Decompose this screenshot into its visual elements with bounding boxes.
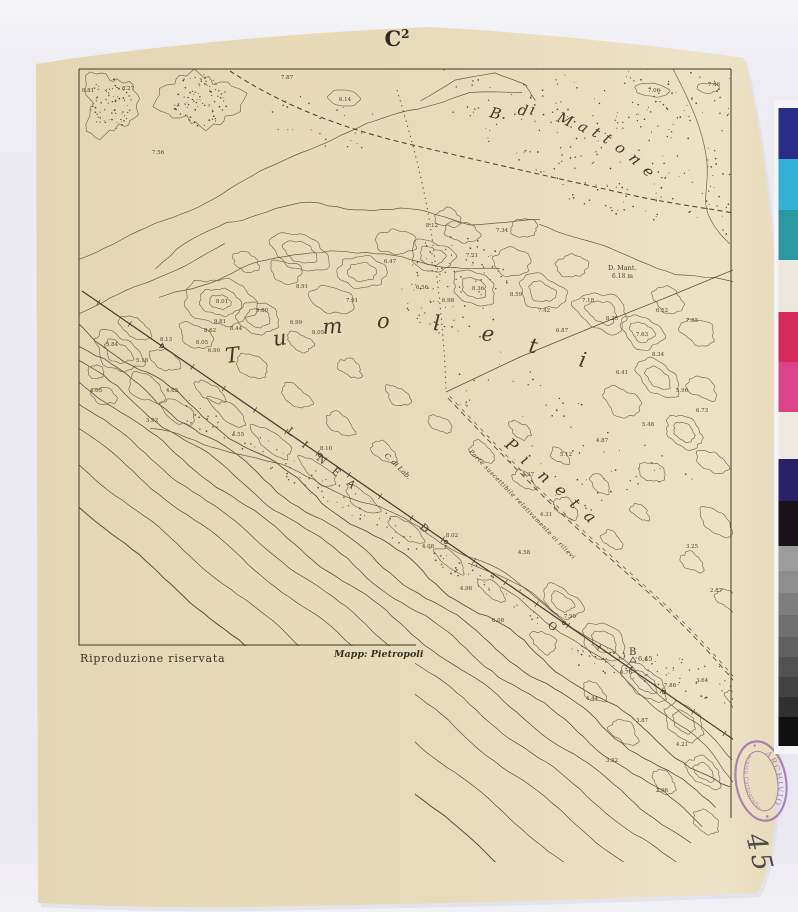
spot-height: 3.92 (146, 418, 158, 424)
spot-height: 6.56 (416, 285, 429, 291)
color-patch (779, 459, 798, 501)
spot-height: 6.41 (616, 370, 628, 376)
spot-height: 7.63 (636, 332, 649, 338)
spot-height: 3.25 (686, 544, 699, 550)
spot-height: 7.87 (281, 75, 294, 81)
color-patch (779, 260, 798, 312)
color-patch (779, 615, 798, 637)
label-b: B (629, 647, 636, 658)
spot-height: 4.87 (596, 438, 609, 444)
spot-height: 8.81 (82, 88, 94, 94)
spot-height: 8.36 (472, 286, 485, 292)
spot-height: 7.21 (466, 253, 478, 259)
map-letter: o (377, 309, 390, 333)
spot-height: 6.87 (556, 328, 569, 334)
color-patch (779, 501, 798, 546)
spot-height: 6.52 (656, 308, 668, 314)
spot-height: 6.47 (384, 259, 397, 265)
credit-left: Riproduzione riservata (80, 652, 225, 665)
color-patch (779, 362, 798, 412)
spot-height: 6.08 (492, 618, 505, 624)
spot-height: 5.12 (560, 452, 572, 458)
spot-height: 7.88 (664, 683, 677, 689)
spot-height: 7.56 (152, 150, 165, 156)
spot-height: 4.55 (232, 432, 245, 438)
spot-height: 9.80 (256, 308, 269, 314)
label-d-mant: D. Mant. (608, 264, 637, 272)
spot-height: 4.98 (460, 586, 473, 592)
color-patch (779, 593, 798, 615)
color-patch (779, 637, 798, 657)
spot-height: 8.59 (510, 292, 523, 298)
spot-height: 8.44 (230, 326, 243, 332)
spot-height: 8.12 (426, 223, 438, 229)
map-art: C2 8.818.277.876.147.067.467.568.019.809… (0, 0, 798, 912)
color-patch (779, 108, 798, 159)
spot-height: 7.06 (648, 88, 661, 94)
spot-height: 7.46 (708, 82, 721, 88)
label-d-mant-height: 6.18 m (612, 273, 633, 280)
label-b-height: 6.45 (638, 655, 652, 663)
spot-height: 8.13 (160, 337, 173, 343)
spot-height: 4.76 (620, 670, 633, 676)
spot-height: 6.90 (208, 348, 221, 354)
spot-height: 8.34 (652, 352, 665, 358)
calibration-strip (779, 108, 798, 746)
spot-height: 5.96 (676, 388, 689, 394)
spot-height: 8.01 (216, 299, 228, 305)
spot-height: 4.08 (422, 544, 435, 550)
spot-height: 7.85 (686, 318, 699, 324)
color-patch (779, 657, 798, 677)
spot-height: 5.84 (106, 342, 119, 348)
color-patch (779, 717, 798, 746)
spot-height: 8.05 (196, 340, 209, 346)
color-patch (779, 412, 798, 459)
spot-height: 7.42 (538, 308, 550, 314)
spot-height: 3.64 (696, 678, 709, 684)
color-patch (779, 677, 798, 697)
spot-height: 4.37 (522, 472, 535, 478)
color-patch (779, 312, 798, 362)
spot-height: 4.05 (90, 388, 103, 394)
spot-height: 7.18 (582, 298, 595, 304)
spot-height: 4.31 (540, 512, 552, 518)
spot-height: 8.27 (122, 86, 135, 92)
spot-height: 2.87 (710, 588, 723, 594)
spot-height: 3.87 (636, 718, 649, 724)
spot-height: 4.58 (518, 550, 531, 556)
spot-height: 8.25 (606, 316, 619, 322)
map-letter: m (322, 314, 344, 339)
spot-height: 8.02 (446, 533, 458, 539)
spot-height: 6.98 (442, 298, 455, 304)
spot-height: 6.99 (290, 320, 303, 326)
spot-height: 4.21 (676, 742, 688, 748)
spot-height: 8.91 (296, 284, 308, 290)
credit-right: Mapp: Pietropoli (333, 649, 424, 660)
color-patch (779, 210, 798, 260)
spot-height: 4.62 (166, 388, 178, 394)
spot-height: 6.73 (696, 408, 709, 414)
spot-height: 3.52 (606, 758, 618, 764)
spot-height: 7.95 (564, 614, 577, 620)
color-patch (779, 697, 798, 717)
spot-height: 2.96 (656, 788, 669, 794)
spot-height: 7.34 (496, 228, 509, 234)
spot-height: 5.48 (642, 422, 655, 428)
spot-height: 8.62 (204, 328, 216, 334)
spot-height: 5.18 (136, 358, 149, 364)
spot-height: 7.91 (346, 298, 358, 304)
color-patch (779, 546, 798, 571)
color-patch (779, 571, 798, 593)
map-letter: l (433, 311, 441, 335)
spot-height: 4.44 (586, 696, 599, 702)
color-patch (779, 159, 798, 210)
spot-height: 6.14 (339, 97, 352, 103)
scanned-map-page: C2 8.818.277.876.147.067.467.568.019.809… (0, 0, 798, 912)
spot-height: 9.81 (214, 319, 226, 325)
